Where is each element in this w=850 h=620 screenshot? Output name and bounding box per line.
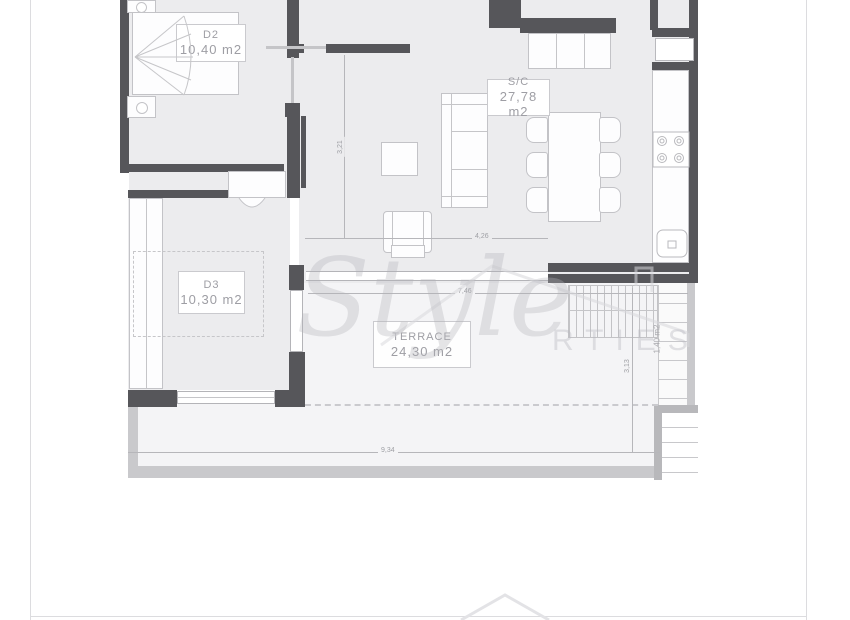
closet-top xyxy=(528,33,611,69)
d3-south-window-mullion xyxy=(178,397,274,398)
kitchen-counter xyxy=(652,70,689,263)
sofa-back-line xyxy=(451,94,452,207)
terrace-bottom-slab xyxy=(128,466,662,478)
d2-sliding-rail xyxy=(266,46,326,49)
dim-line-terrace-right xyxy=(632,288,633,452)
room-area-terrace: 24,30 m2 xyxy=(391,344,453,359)
d3-east-glass-door xyxy=(290,290,303,352)
room-area-d3: 10,30 m2 xyxy=(180,292,242,307)
side-strip-area-label: 1,40 m2 xyxy=(653,322,661,357)
dim-label-living-width: 4,26 xyxy=(472,233,492,241)
ext-stairs-wall-top xyxy=(654,405,698,413)
page-frame-right xyxy=(806,0,807,620)
room-code-d3: D3 xyxy=(203,279,219,292)
dining-table xyxy=(548,112,601,222)
room-area-d2: 10,40 m2 xyxy=(180,42,242,57)
exterior-steps xyxy=(662,413,698,478)
room-code-sc: S/C xyxy=(508,76,529,89)
dim-line-living-horizontal xyxy=(305,238,548,239)
room-code-d2: D2 xyxy=(203,29,219,42)
sofa-seat-line-2 xyxy=(451,169,487,170)
living-room-floor xyxy=(299,0,689,283)
wall-d2-south xyxy=(326,44,410,53)
armchair-footrest xyxy=(391,245,425,258)
room-code-terrace: TERRACE xyxy=(392,331,452,344)
wall-d2-pillar xyxy=(285,103,300,117)
terrace-floor-lower xyxy=(138,404,662,466)
staircase-mid-line xyxy=(568,310,658,311)
room-label-d3: D3 10,30 m2 xyxy=(178,271,245,314)
wall-closet-north xyxy=(520,18,616,33)
dim-label-living-depth: 3,21 xyxy=(337,137,345,157)
dining-chair-4 xyxy=(599,117,621,143)
page-frame-left xyxy=(30,0,31,620)
dim-line-terrace-top xyxy=(308,293,688,294)
closet-top-divider-2 xyxy=(584,34,585,68)
wall-d3-south-a xyxy=(128,390,177,407)
closet-top-divider-1 xyxy=(556,34,557,68)
terrace-cover-dashed-line xyxy=(305,404,658,406)
room-label-sc: S/C 27,78 m2 xyxy=(487,79,550,116)
terrace-left-band xyxy=(128,407,138,470)
dim-label-terrace-width: 7,46 xyxy=(455,288,475,296)
sofa-armrest-top xyxy=(442,104,487,105)
wall-living-south-lower xyxy=(548,274,693,283)
wall-d3-east-pillar-lower xyxy=(289,352,305,392)
dining-chair-2 xyxy=(526,152,548,178)
wall-d3-east-pillar-upper xyxy=(289,265,304,290)
wall-living-south-upper xyxy=(548,263,693,272)
ext-stairs-wall-vertical xyxy=(654,405,662,480)
tv-screen xyxy=(301,116,306,188)
dim-label-bottom-width: 9,34 xyxy=(378,447,398,455)
wall-kitchen-top-stub xyxy=(650,0,658,30)
room-label-terrace: TERRACE 24,30 m2 xyxy=(373,321,471,368)
wall-d2-east-lower xyxy=(287,117,300,198)
desk-d3 xyxy=(228,171,286,198)
dining-chair-5 xyxy=(599,152,621,178)
room-area-sc: 27,78 m2 xyxy=(488,89,549,119)
kitchen-window-box xyxy=(655,38,694,61)
side-strip-steps xyxy=(658,285,689,405)
living-glass-slider xyxy=(306,271,548,281)
dim-label-terrace-depth: 3,13 xyxy=(624,356,632,376)
dining-chair-3 xyxy=(526,187,548,213)
sofa-seat-line-1 xyxy=(451,131,487,132)
d2-door-leaf xyxy=(291,57,294,103)
page-frame-bottom xyxy=(30,616,807,617)
floor-plan-page: 7,46 9,34 3,13 3,21 4,26 1,40 m2 D2 10,4… xyxy=(0,0,850,620)
sofa xyxy=(441,93,488,208)
wall-d3-north xyxy=(128,190,228,198)
wall-left-outer xyxy=(120,0,129,173)
nightstand-bottom-lamp xyxy=(136,102,148,114)
coffee-table xyxy=(381,142,418,176)
dining-chair-6 xyxy=(599,187,621,213)
dining-chair-1 xyxy=(526,117,548,143)
room-label-d2: D2 10,40 m2 xyxy=(176,24,246,62)
wall-top-pillar xyxy=(489,0,521,28)
wall-d3-south-b xyxy=(275,390,305,407)
sofa-armrest-bottom xyxy=(442,196,487,197)
